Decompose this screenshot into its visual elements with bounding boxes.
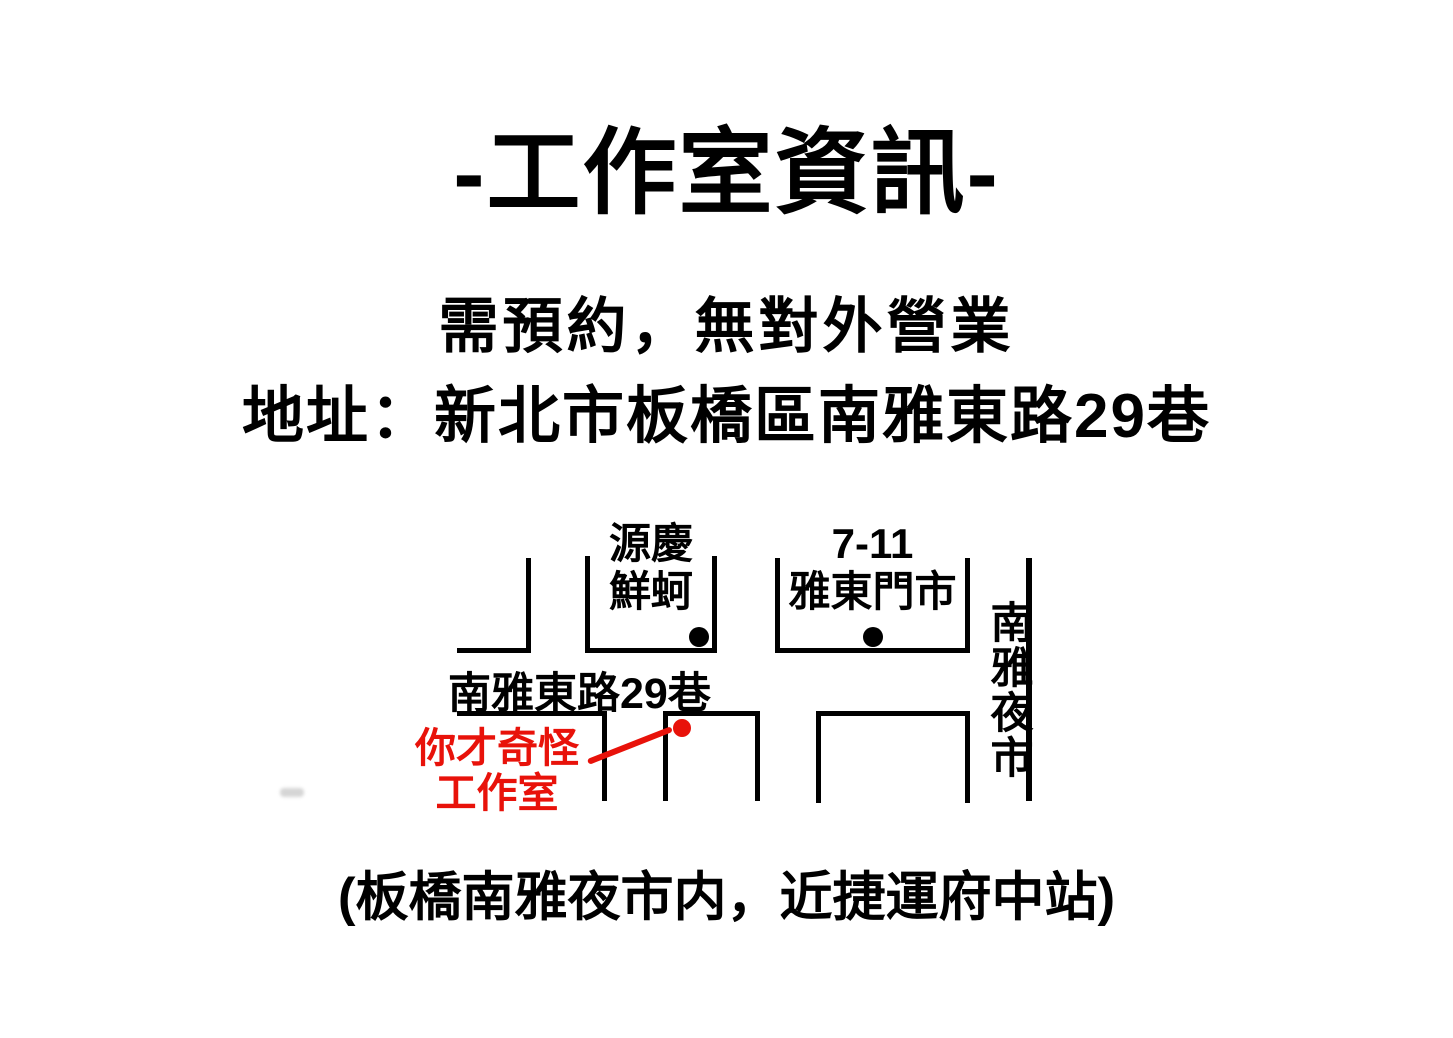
- studio-marker-dot: [673, 719, 691, 737]
- oyster-shop-name-line1: 源慶: [585, 520, 717, 568]
- studio-label: 你才奇怪 工作室: [405, 726, 589, 816]
- studio-leader-line: [587, 726, 673, 765]
- studio-block-right-wall: [755, 711, 760, 801]
- map-corner-topleft-vertical: [526, 558, 531, 652]
- oyster-block-bottom-wall: [585, 648, 717, 653]
- street-label: 南雅東路29巷: [448, 659, 711, 721]
- seven-eleven-marker-dot: [863, 627, 883, 647]
- poi-label-oyster-shop: 源慶 鮮蚵: [585, 520, 717, 616]
- studio-name-line2: 工作室: [405, 771, 589, 816]
- south-block-left-wall: [816, 711, 821, 803]
- seven-eleven-name-line1: 7-11: [775, 520, 970, 568]
- south-block-right-wall: [965, 711, 970, 803]
- seven-eleven-name-line2: 雅東門市: [775, 568, 970, 616]
- oyster-shop-marker-dot: [689, 627, 709, 647]
- poi-label-seven-eleven: 7-11 雅東門市: [775, 520, 970, 616]
- studio-name-line1: 你才奇怪: [405, 726, 589, 771]
- south-block-top-wall: [816, 711, 970, 716]
- flyer-page: -工作室資訊- 需預約，無對外營業 地址：新北市板橋區南雅東路29巷 源慶 鮮蚵…: [0, 0, 1453, 1038]
- footer-note: (板橋南雅夜市内，近捷運府中站): [0, 869, 1453, 927]
- seven-eleven-block-bottom-wall: [775, 648, 970, 653]
- oyster-shop-name-line2: 鮮蚵: [585, 568, 717, 616]
- map-corner-topleft-horizontal: [457, 648, 531, 653]
- night-market-label: 南雅夜市: [977, 600, 1039, 780]
- studio-block-left-wall: [663, 711, 668, 801]
- stray-mark: [280, 788, 304, 797]
